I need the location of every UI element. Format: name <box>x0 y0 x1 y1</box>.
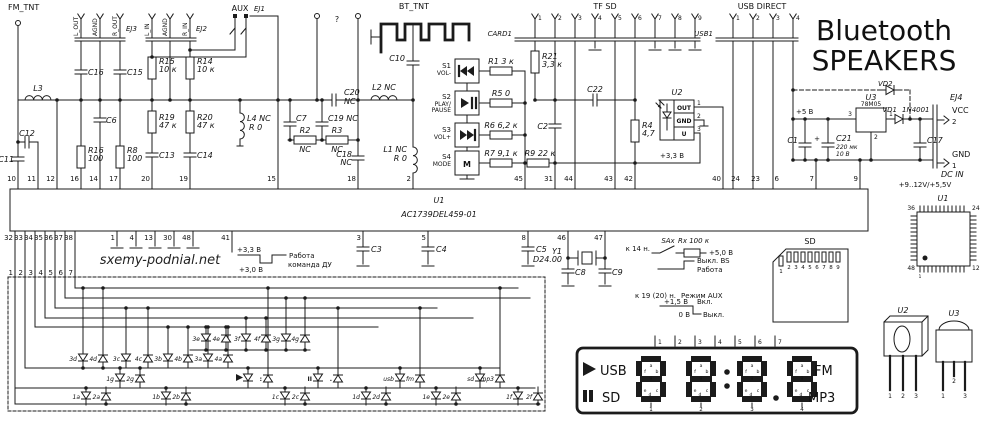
value-r8: 100 <box>127 154 142 163</box>
pin-num: 42 <box>624 175 633 183</box>
ann1-low: +3,0 В <box>239 266 263 274</box>
tf-pin: 2 <box>558 15 562 22</box>
label-c22: C22 <box>587 85 603 94</box>
usb-pin: 2 <box>756 15 760 22</box>
value-c18: NC <box>340 158 352 167</box>
seg-letter: g <box>801 376 804 381</box>
card1-label: CARD1 <box>488 30 512 38</box>
pin-num: 3 <box>357 234 361 242</box>
sd-pad-num: 8 <box>829 265 833 271</box>
play-icon <box>583 362 596 376</box>
qfp-u1-package <box>911 206 976 272</box>
ann3-lo: 0 В <box>679 311 691 319</box>
label-c8: C8 <box>575 268 586 277</box>
u3-pin-num: 3 <box>848 111 852 118</box>
qfp-pin48: 48 <box>907 265 915 272</box>
pin-num: 32 <box>4 234 13 242</box>
diode-label: 2f <box>526 394 533 401</box>
mode-icon: M <box>463 160 471 169</box>
display-mp3: MP3 <box>808 391 835 406</box>
pin-num: 38 <box>64 234 73 242</box>
ann2-on: Работа <box>697 266 722 274</box>
conn-num: 3 <box>29 269 33 277</box>
seg-letter: g <box>650 376 653 381</box>
conn-num: 4 <box>39 269 44 277</box>
u2-pin-gnd: GND <box>677 118 692 125</box>
pin-num: 8 <box>522 234 526 242</box>
label-c2: C2 <box>537 122 548 131</box>
bt-ant-label: BT_TNT <box>399 2 429 11</box>
label-l1: L1 NC <box>383 145 407 154</box>
display-fm: FM <box>814 364 833 379</box>
diode-label: 2g <box>126 376 134 383</box>
value-r15: 10 к <box>159 65 177 74</box>
pin-num: 14 <box>89 175 98 183</box>
ann2-off: Выкл. BS <box>697 257 730 265</box>
pin-num: 5 <box>422 234 426 242</box>
u3-pin-num: 2 <box>874 134 878 141</box>
tf-pin: 4 <box>598 15 602 22</box>
seg-letter: e <box>644 389 647 394</box>
pin-num: 43 <box>604 175 613 183</box>
pin-num: 13 <box>144 234 153 242</box>
pin-num: 37 <box>54 234 63 242</box>
ej4-pin-1: 1 <box>952 162 956 170</box>
sd-pad-num: 9 <box>836 265 840 271</box>
label-c1: C1 <box>787 136 798 145</box>
value-l1: R 0 <box>394 154 407 163</box>
pin-num: 20 <box>141 175 150 183</box>
diode-matrix <box>8 231 545 411</box>
pin-num: 45 <box>514 175 523 183</box>
sd-drawing-label: SD <box>804 237 815 246</box>
pin-num: 4 <box>130 234 135 242</box>
label-r2: R2 <box>300 126 311 135</box>
pkg-u3-pin: 1 <box>941 393 945 400</box>
ej2-pin-rin: R_IN <box>182 23 189 36</box>
diode-label: 4e <box>212 336 220 343</box>
seg-letter: g <box>700 376 703 381</box>
sd-pad-num: 4 <box>801 265 805 271</box>
u1-part: AC1739DEL459-01 <box>400 210 476 219</box>
u1-top-pins: 10 11 12 16 14 17 20 19 15 18 2 45 31 44… <box>7 175 858 183</box>
pin-num: 24 <box>731 175 740 183</box>
sd-pad-num: 5 <box>808 265 812 271</box>
diode-label: 1f <box>506 394 513 401</box>
value-r2: NC <box>299 145 311 154</box>
value-l4: R 0 <box>249 123 262 132</box>
label-r1: R1 3 к <box>488 57 514 66</box>
label-c13: C13 <box>159 151 175 160</box>
tf-pin: 3 <box>578 15 582 22</box>
qfp-pin12: 12 <box>972 265 980 272</box>
ej3-label: EJ3 <box>126 25 137 33</box>
diode-label: 1d <box>352 394 360 401</box>
value-dc-in: +9..12V/+5,5V <box>899 181 952 189</box>
component-symbols <box>12 14 926 287</box>
conn-num: 1 <box>9 269 13 277</box>
label-r3: R3 <box>332 126 343 135</box>
seg-letter: b <box>757 369 760 375</box>
value-r16: 100 <box>88 154 103 163</box>
diode-label: mp3 <box>481 376 495 383</box>
value-c21-uf: 220 мк <box>836 144 858 151</box>
inductor-l4 <box>240 113 244 139</box>
label-s3-func: VOL+ <box>434 134 451 141</box>
u2-pin-num: 1 <box>697 100 701 107</box>
pin-num: 10 <box>7 175 16 183</box>
pin-num: 16 <box>70 175 79 183</box>
ann2-sax: SAx <box>661 237 675 245</box>
seg-letter: g <box>751 376 754 381</box>
usb1-label: USB1 <box>694 30 713 38</box>
label-l4: L4 NC <box>247 114 271 123</box>
label-gnd: GND <box>952 150 970 159</box>
label-c10: C10 <box>389 54 405 63</box>
label-r9: R9 22 к <box>525 149 556 158</box>
colon-dot <box>724 383 730 389</box>
label-vcc: VCC <box>952 106 969 115</box>
value-y1: D24.00 <box>533 255 562 264</box>
ann3-on: Вкл. <box>697 298 713 306</box>
tf-pin: 8 <box>678 15 682 22</box>
sd-pad-num: 7 <box>822 265 826 271</box>
watermark: sxemy-podnial.net <box>100 253 221 268</box>
tf-pin: 6 <box>638 15 642 22</box>
sd-pad-num: 3 <box>794 265 798 271</box>
pin-num: 23 <box>751 175 760 183</box>
ann2-to: к 14 н. <box>626 245 650 253</box>
label-vd1: VD1 <box>882 106 897 114</box>
seg-letter: f <box>745 369 747 375</box>
diode-label: 1c <box>272 394 280 401</box>
ej3-pin-lout: L_OUT <box>73 17 80 36</box>
label-c6: C6 <box>106 116 117 125</box>
label-c5: C5 <box>536 245 547 254</box>
ej2-label: EJ2 <box>196 25 207 33</box>
diode-label: fm <box>406 376 414 383</box>
pin1-dot <box>923 256 928 261</box>
label-s1: S1 <box>442 62 451 70</box>
ann2-rx: Rx 100 к <box>678 237 710 245</box>
ej3-pin-rout: R_OUT <box>112 16 119 36</box>
label-s3: S3 <box>442 126 451 134</box>
display-pin: 1 <box>658 339 662 346</box>
ann2-5v: +5,0 В <box>709 249 733 257</box>
pin-num: 9 <box>854 175 858 183</box>
wires-bt-antenna <box>371 24 469 189</box>
seg-letter: a <box>801 364 804 369</box>
display-pin: 6 <box>758 339 762 346</box>
diode-label: 3b <box>154 356 162 363</box>
value-r14: 10 к <box>197 65 215 74</box>
dot-mark-label: . <box>330 376 332 383</box>
play-mark-icon <box>236 374 243 381</box>
tf-pin: 9 <box>698 15 702 22</box>
polarity-plus: + <box>814 135 820 143</box>
label-c21: C21 <box>836 134 852 143</box>
pause-icon <box>583 390 593 402</box>
pin-num: 2 <box>407 175 411 183</box>
pin-num: 1 <box>111 234 115 242</box>
conn-num: 2 <box>19 269 23 277</box>
label-s4: S4 <box>442 153 451 161</box>
diode-label: sd <box>467 376 474 383</box>
display-pin: 2 <box>678 339 682 346</box>
label-c7: C7 <box>296 114 308 123</box>
label-c15: C15 <box>127 68 143 77</box>
ann3-off: Выкл. <box>703 311 724 319</box>
pkg-u2-pin: 1 <box>888 393 892 400</box>
diode-label: 1g <box>106 376 114 383</box>
diode-label: 4f <box>254 336 261 343</box>
seg-letter: b <box>807 369 810 375</box>
seg-letter: c <box>757 389 760 394</box>
pin-num: 30 <box>163 234 172 242</box>
pin-num: 33 <box>14 234 23 242</box>
pin-num: 19 <box>179 175 188 183</box>
seg-letter: f <box>795 369 797 375</box>
pkg-u2-pin: 2 <box>901 393 905 400</box>
seg-letter: d <box>800 392 803 398</box>
seg-letter: e <box>694 389 697 394</box>
usb-direct-label: USB DIRECT <box>738 2 787 11</box>
u2-pin-u: U <box>682 131 687 138</box>
seg-letter: a <box>700 364 703 369</box>
diode-label: 4b <box>174 356 182 363</box>
label-c19: C19 NC <box>328 114 358 123</box>
seg-letter: f <box>644 369 646 375</box>
sd-pad-num: 6 <box>815 265 819 271</box>
pin-num: 7 <box>810 175 814 183</box>
pause-mark-label: II <box>308 376 312 383</box>
usb-pin: 3 <box>776 15 780 22</box>
diode-label: 2e <box>442 394 450 401</box>
seg-letter: d <box>649 392 652 398</box>
value-c21-v: 10 В <box>836 151 850 158</box>
tf-pin: 1 <box>538 15 542 22</box>
diode-label: 3d <box>69 356 77 363</box>
label-dc-in: DC IN <box>941 170 964 179</box>
label-r6: R6 6,2 к <box>484 121 517 130</box>
label-c3: C3 <box>371 245 382 254</box>
label-r5: R5 0 <box>492 89 510 98</box>
u2-pin-num: 3 <box>697 126 701 133</box>
rail-3v3-label: +3,3 В <box>660 152 684 160</box>
label-u2: U2 <box>672 88 683 97</box>
conn-num: 5 <box>49 269 53 277</box>
pin-num: 46 <box>557 234 566 242</box>
page-title: Bluetooth <box>816 14 952 47</box>
seg-letter: d <box>750 392 753 398</box>
diode-label: 2d <box>372 394 380 401</box>
diode-label: 2a <box>93 394 101 401</box>
label-s4-func: MODE <box>433 161 452 168</box>
decimal-dot <box>773 395 779 401</box>
label-c11: C11 <box>0 155 14 164</box>
tf-pin: 5 <box>618 15 622 22</box>
diode-label: 3a <box>195 356 203 363</box>
rail-5v-label: +5 В <box>796 108 814 116</box>
crystal-y1 <box>578 251 596 265</box>
display-pin: 4 <box>718 339 722 346</box>
usb-pin: 4 <box>796 15 800 22</box>
pkg-u2-pin: 3 <box>914 393 918 400</box>
diode-label: 4a <box>215 356 223 363</box>
display-sd: SD <box>602 391 620 406</box>
pin-num: 11 <box>27 175 36 183</box>
pkg-u3-label: U3 <box>949 309 960 318</box>
label-ej4: EJ4 <box>950 93 963 102</box>
u1-name: U1 <box>434 196 445 205</box>
value-c20: NC <box>344 97 356 106</box>
pin-num: 47 <box>594 234 603 242</box>
diode-label: 3f <box>234 336 241 343</box>
colon-dot <box>724 369 730 375</box>
seg-letter: a <box>650 364 653 369</box>
sd-card-drawing <box>773 249 848 322</box>
colon-mark-label: : <box>260 376 262 383</box>
pin-num: 36 <box>44 234 53 242</box>
pin-num: 48 <box>182 234 191 242</box>
seg-letter: e <box>795 389 798 394</box>
seg-letter: c <box>656 389 659 394</box>
diode-vd1 <box>891 115 907 124</box>
pkg-u3-pin: 2 <box>952 378 956 385</box>
digit-num: 2 <box>699 407 703 413</box>
sd-pad-num: 1 <box>779 269 783 275</box>
label-r7: R7 9,1 к <box>484 149 517 158</box>
diode-label: 4c <box>135 356 143 363</box>
schematic-canvas: FM_TNT BT_TNT TF SD USB DIRECT AUX EJ1 E… <box>0 0 985 428</box>
label-l2: L2 NC <box>372 83 396 92</box>
ann1-cmd: команда ДУ <box>288 261 332 269</box>
u2-pin-out: OUT <box>677 105 692 112</box>
label-l3: L3 <box>33 84 43 93</box>
diode-label: 3c <box>113 356 121 363</box>
conn-num: 7 <box>69 269 73 277</box>
label-c17: C17 <box>927 136 944 145</box>
diode-label: 1e <box>422 394 430 401</box>
labels: FM_TNT BT_TNT TF SD USB DIRECT AUX EJ1 E… <box>0 2 980 400</box>
unknown-label: ? <box>335 15 339 24</box>
fm-ant-label: FM_TNT <box>8 3 39 12</box>
qfp-pin36: 36 <box>907 205 915 212</box>
value-r21: 3,3 к <box>542 60 562 69</box>
seg-letter: f <box>694 369 696 375</box>
pin-num: 34 <box>24 234 33 242</box>
diode-label: 3g <box>272 336 280 343</box>
label-vd2: VD2 <box>878 80 893 88</box>
pin-num: 44 <box>564 175 573 183</box>
package-u2-drawing <box>884 316 928 390</box>
pkg-u3-pin: 3 <box>963 393 967 400</box>
diode-label: 2b <box>172 394 180 401</box>
qfp-label: U1 <box>938 194 949 203</box>
u2-pin-num: 2 <box>697 113 701 120</box>
usb-pin: 1 <box>736 15 740 22</box>
value-r20: 47 к <box>197 121 215 130</box>
label-s2-func2: PAUSE <box>432 107 452 114</box>
label-c4: C4 <box>436 245 447 254</box>
ej2-pin-agnd: AGND <box>162 18 169 36</box>
pin-num: 40 <box>712 175 721 183</box>
inductor-l2 <box>371 96 397 100</box>
conn-num: 6 <box>59 269 64 277</box>
value-vd1: 1N4001 <box>902 106 930 114</box>
diode-label: 1b <box>152 394 160 401</box>
seg-letter: a <box>751 364 754 369</box>
value-r19: 47 к <box>159 121 177 130</box>
ann1-work: Работа <box>289 252 314 260</box>
pin-num: 31 <box>544 175 553 183</box>
sd-pad-num: 2 <box>787 265 791 271</box>
value-r4: 4,7 <box>642 129 656 138</box>
schematic-page: FM_TNT BT_TNT TF SD USB DIRECT AUX EJ1 E… <box>0 0 985 428</box>
ann3-hi: +1,5 В <box>664 298 688 306</box>
qfp-pin24: 24 <box>972 205 980 212</box>
diode-label: 4g <box>291 336 299 343</box>
pin-num: 41 <box>221 234 230 242</box>
digit-num: 3 <box>750 407 754 413</box>
value-u3: 78M05 <box>861 101 882 108</box>
pin-num: 12 <box>46 175 55 183</box>
diode-label: 1a <box>73 394 81 401</box>
aux-label: AUX <box>232 4 249 13</box>
ann1-high: +3,3 В <box>237 246 261 254</box>
inductor-l1 <box>413 147 417 173</box>
ej4-pin-2: 2 <box>952 118 956 126</box>
pin-num: 18 <box>347 175 356 183</box>
tf-pin: 7 <box>658 15 662 22</box>
display-pin: 7 <box>778 339 782 346</box>
tfsd-label: TF SD <box>592 2 616 11</box>
display-usb: USB <box>600 364 627 379</box>
page-subtitle: SPEAKERS <box>812 44 957 77</box>
inductor-l3 <box>25 96 51 100</box>
seg-letter: d <box>699 392 702 398</box>
pin-num: 6 <box>775 175 780 183</box>
pin-num: 17 <box>109 175 118 183</box>
ej1-label: EJ1 <box>254 5 265 13</box>
ej2-pin-lin: L_IN <box>144 23 151 36</box>
label-c14: C14 <box>197 151 213 160</box>
digit-num: 4 <box>800 407 804 413</box>
display-pin: 3 <box>698 339 702 346</box>
label-c12: C12 <box>19 129 35 138</box>
label-s2: S2 <box>442 93 451 101</box>
diode-label: usb <box>383 376 394 383</box>
pin-num: 35 <box>34 234 43 242</box>
ej3-pin-agnd: AGND <box>92 18 99 36</box>
digit-num: 1 <box>649 407 653 413</box>
diode-label: 3e <box>192 336 200 343</box>
diode-label: 4d <box>89 356 97 363</box>
label-c16: C16 <box>88 68 104 77</box>
label-s1-func: VOL- <box>437 70 451 77</box>
display-pin: 5 <box>738 339 742 346</box>
pkg-u2-label: U2 <box>898 306 909 315</box>
pin-num: 15 <box>267 175 276 183</box>
seg-letter: b <box>706 369 709 375</box>
seg-letter: b <box>656 369 659 375</box>
label-c9: C9 <box>612 268 623 277</box>
qfp-pin1: 1 <box>919 274 922 280</box>
seg-letter: e <box>745 389 748 394</box>
diode-label: 2c <box>292 394 300 401</box>
seg-letter: c <box>706 389 709 394</box>
label-c20: C20 <box>344 88 360 97</box>
